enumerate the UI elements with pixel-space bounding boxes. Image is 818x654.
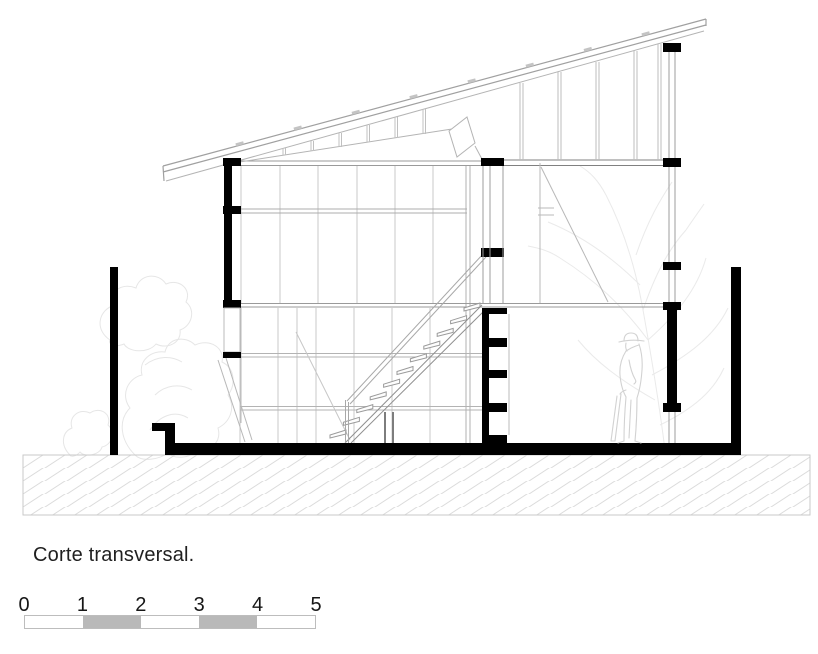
scale-segment-1-2	[83, 616, 141, 628]
stair-handrail	[346, 254, 487, 443]
mid-steel-column	[481, 158, 504, 303]
scale-segment-2-3	[141, 616, 199, 628]
mono-pitch-roof-truss	[163, 19, 706, 181]
stepped-louver-wall	[482, 308, 509, 443]
drawing-title: Corte transversal.	[33, 544, 194, 567]
scale-label-2: 2	[135, 594, 146, 617]
garden-wall-right	[731, 267, 741, 455]
scale-label-5: 5	[310, 594, 321, 617]
scale-label-1: 1	[77, 594, 88, 617]
architectural-section-sheet: { "title": { "text": "Corte transversal.…	[0, 0, 818, 654]
human-scale-figure	[611, 333, 644, 443]
scale-bar	[24, 615, 316, 629]
stair-stringer	[345, 305, 486, 443]
scale-label-3: 3	[194, 594, 205, 617]
left-cut-wall	[223, 158, 241, 358]
right-steel-column	[663, 43, 681, 443]
truss-webs-left	[283, 109, 426, 155]
tree-sketch-right	[528, 166, 728, 450]
scale-label-0: 0	[18, 594, 29, 617]
cut-elements	[110, 43, 741, 455]
scale-segment-4-5	[257, 616, 315, 628]
scale-bar-labels: 0 1 2 3 4 5	[0, 594, 818, 616]
staircase	[330, 254, 486, 443]
truss-webs-right	[520, 44, 661, 160]
scale-segment-0-1	[25, 616, 83, 628]
scale-label-4: 4	[252, 594, 263, 617]
stair-treads	[330, 303, 480, 438]
purlin-ticks	[235, 31, 650, 146]
tree-sketch-left	[63, 276, 233, 459]
ground-hatch	[23, 455, 810, 515]
scale-segment-3-4	[199, 616, 257, 628]
garden-wall-left	[110, 267, 118, 455]
